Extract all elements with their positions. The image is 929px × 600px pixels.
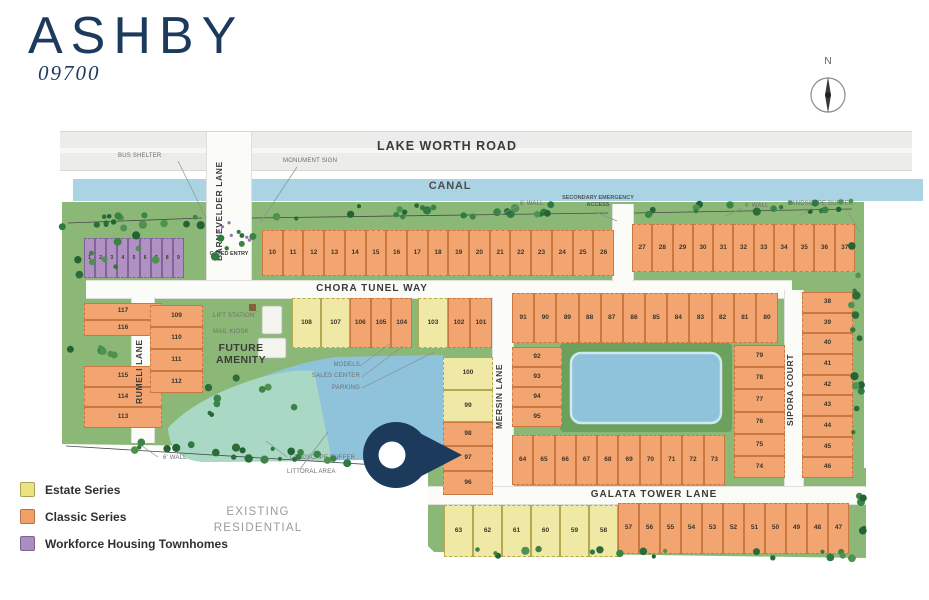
legend-item-workforce-townhomes: Workforce Housing Townhomes (20, 535, 228, 552)
lot-49[interactable]: 49 (786, 503, 807, 554)
legend-item-estate-series: Estate Series (20, 481, 228, 498)
lot-36[interactable]: 36 (814, 224, 834, 272)
lot-82[interactable]: 82 (712, 293, 734, 343)
lot-number: 57 (625, 525, 632, 532)
lot-number: 16 (393, 250, 400, 257)
lot-102[interactable]: 102 (448, 298, 470, 348)
lot-number: 108 (301, 320, 312, 327)
lot-79[interactable]: 79 (734, 345, 785, 367)
lot-65[interactable]: 65 (533, 435, 554, 485)
lot-35[interactable]: 35 (794, 224, 814, 272)
lot-number: 107 (330, 320, 341, 327)
lot-9[interactable]: 9 (173, 238, 184, 278)
lot-number: 27 (639, 245, 646, 252)
classic-series-swatch (20, 509, 35, 524)
lot-number: 86 (630, 315, 637, 322)
lot-number: 82 (719, 315, 726, 322)
lot-group-center-south: 64656667686970717273 (512, 435, 725, 485)
lot-number: 115 (118, 373, 129, 380)
lot-number: 71 (668, 457, 675, 464)
lot-number: 43 (824, 402, 831, 409)
lot-105[interactable]: 105 (371, 298, 392, 348)
lot-group-mersin-west-estate: 10099 (443, 357, 493, 422)
lot-number: 47 (835, 525, 842, 532)
lot-5[interactable]: 5 (128, 238, 139, 278)
legend-label: Workforce Housing Townhomes (45, 537, 228, 551)
lot-number: 113 (118, 414, 129, 421)
lot-52[interactable]: 52 (723, 503, 744, 554)
lot-107[interactable]: 107 (321, 298, 350, 348)
lot-number: 3 (110, 256, 113, 261)
lot-number: 104 (396, 320, 407, 327)
lot-62[interactable]: 62 (473, 505, 502, 557)
compass: N (800, 56, 856, 130)
lot-number: 61 (513, 528, 520, 535)
lot-number: 79 (756, 353, 763, 360)
lot-number: 48 (814, 525, 821, 532)
road-emergency-access (612, 204, 634, 282)
label-monument-sign: MONUMENT SIGN (283, 158, 337, 164)
lot-group-chora-south-estate: 108107 (292, 298, 350, 348)
lot-33[interactable]: 33 (754, 224, 774, 272)
lot-92[interactable]: 92 (512, 347, 562, 367)
lot-number: 10 (269, 250, 276, 257)
lot-72[interactable]: 72 (682, 435, 703, 485)
road-barnevelder-lane (206, 132, 252, 282)
lot-103[interactable]: 103 (418, 298, 448, 348)
lot-number: 39 (824, 320, 831, 327)
lot-number: 90 (542, 315, 549, 322)
lot-number: 22 (517, 250, 524, 257)
lot-number: 55 (667, 525, 674, 532)
lot-12[interactable]: 12 (303, 230, 324, 276)
canal-band (73, 179, 923, 201)
lot-63[interactable]: 63 (444, 505, 473, 557)
label-parking: PARKING (316, 385, 360, 391)
lot-number: 38 (824, 299, 831, 306)
street-label-chora-tunel-way: CHORA TUNEL WAY (292, 283, 452, 294)
label-models: MODELS (320, 362, 360, 368)
lot-group-rumeli-east: 109110111112 (150, 305, 203, 393)
lot-69[interactable]: 69 (618, 435, 639, 485)
lot-22[interactable]: 22 (510, 230, 531, 276)
lot-number: 66 (562, 457, 569, 464)
lot-73[interactable]: 73 (704, 435, 725, 485)
lot-number: 31 (720, 245, 727, 252)
compass-north-label: N (800, 56, 856, 67)
lot-number: 72 (689, 457, 696, 464)
lot-number: 11 (290, 250, 297, 257)
lot-16[interactable]: 16 (386, 230, 407, 276)
lot-57[interactable]: 57 (618, 503, 639, 554)
lot-38[interactable]: 38 (802, 292, 853, 313)
lot-21[interactable]: 21 (490, 230, 511, 276)
lot-104[interactable]: 104 (391, 298, 412, 348)
lot-74[interactable]: 74 (734, 456, 785, 478)
lot-19[interactable]: 19 (448, 230, 469, 276)
lot-number: 80 (763, 315, 770, 322)
lot-44[interactable]: 44 (802, 416, 853, 437)
lot-group-chora-south-classic: 106105104 (350, 298, 412, 348)
lot-3[interactable]: 3 (106, 238, 117, 278)
lot-group-top-row-west: 1011121314151617181920212223242526 (262, 230, 614, 276)
lot-41[interactable]: 41 (802, 354, 853, 375)
lot-number: 50 (772, 525, 779, 532)
lot-number: 99 (464, 403, 471, 410)
lot-17[interactable]: 17 (407, 230, 428, 276)
label-lift-station: LIFT STATION (213, 313, 254, 319)
lot-78[interactable]: 78 (734, 367, 785, 389)
lot-110[interactable]: 110 (150, 327, 203, 349)
lot-number: 101 (476, 320, 487, 327)
lot-4[interactable]: 4 (117, 238, 128, 278)
street-label-sipora-court: SIPORA COURT (785, 330, 795, 450)
lot-number: 7 (155, 256, 158, 261)
lot-15[interactable]: 15 (366, 230, 387, 276)
legend-item-classic-series: Classic Series (20, 508, 228, 525)
lot-number: 109 (171, 313, 182, 320)
label-wall-top-left: 6' WALL (520, 201, 544, 207)
lot-number: 97 (464, 455, 471, 462)
lot-number: 110 (171, 335, 182, 342)
lot-56[interactable]: 56 (639, 503, 660, 554)
lot-number: 98 (464, 431, 471, 438)
lot-number: 56 (646, 525, 653, 532)
lot-number: 88 (586, 315, 593, 322)
lot-number: 85 (653, 315, 660, 322)
lot-29[interactable]: 29 (673, 224, 693, 272)
lot-number: 14 (352, 250, 359, 257)
lot-80[interactable]: 80 (756, 293, 778, 343)
lot-18[interactable]: 18 (428, 230, 449, 276)
lot-14[interactable]: 14 (345, 230, 366, 276)
lot-34[interactable]: 34 (774, 224, 794, 272)
lot-number: 58 (600, 528, 607, 535)
lot-32[interactable]: 32 (733, 224, 753, 272)
lot-number: 34 (780, 245, 787, 252)
lot-number: 83 (697, 315, 704, 322)
lot-84[interactable]: 84 (667, 293, 689, 343)
lot-81[interactable]: 81 (734, 293, 756, 343)
lot-number: 114 (118, 394, 129, 401)
lot-group-galata-south-classic: 5756555453525150494847 (618, 503, 849, 554)
lot-group-center-west: 92939495 (512, 347, 562, 427)
lot-99[interactable]: 99 (443, 390, 493, 423)
lot-94[interactable]: 94 (512, 387, 562, 407)
lot-89[interactable]: 89 (556, 293, 578, 343)
lot-number: 102 (454, 320, 465, 327)
lot-95[interactable]: 95 (512, 407, 562, 427)
lot-26[interactable]: 26 (593, 230, 614, 276)
lot-45[interactable]: 45 (802, 437, 853, 458)
label-littoral-area: LITTORAL AREA (287, 469, 336, 475)
lot-6[interactable]: 6 (140, 238, 151, 278)
lot-group-center-east: 797877767574 (734, 345, 785, 478)
lot-11[interactable]: 11 (283, 230, 304, 276)
lot-68[interactable]: 68 (597, 435, 618, 485)
lot-number: 30 (699, 245, 706, 252)
lot-number: 100 (463, 370, 474, 377)
lot-64[interactable]: 64 (512, 435, 533, 485)
lot-number: 111 (171, 357, 181, 364)
lot-number: 32 (740, 245, 747, 252)
lot-number: 51 (751, 525, 758, 532)
label-future-amenity: FUTURE AMENITY (203, 342, 279, 366)
lot-number: 18 (434, 250, 441, 257)
lot-number: 68 (604, 457, 611, 464)
label-bus-shelter: BUS SHELTER (118, 153, 161, 159)
lot-31[interactable]: 31 (713, 224, 733, 272)
street-label-mersin-lane: MERSIN LANE (494, 336, 504, 456)
lot-43[interactable]: 43 (802, 395, 853, 416)
lot-number: 46 (824, 464, 831, 471)
lot-113[interactable]: 113 (84, 407, 162, 428)
lot-93[interactable]: 93 (512, 367, 562, 387)
label-gated-entry: GATED ENTRY (206, 251, 252, 258)
workforce-townhomes-swatch (20, 536, 35, 551)
lot-number: 74 (756, 464, 763, 471)
lot-37[interactable]: 37 (835, 224, 855, 272)
lot-98[interactable]: 98 (443, 422, 493, 446)
lot-number: 45 (824, 444, 831, 451)
lot-number: 29 (679, 245, 686, 252)
lot-group-chora-south-estate-2: 103 (418, 298, 448, 348)
lot-number: 4 (121, 256, 124, 261)
lot-60[interactable]: 60 (531, 505, 560, 557)
site-plan-screen: 1234567891011121314151617181920212223242… (0, 0, 929, 600)
lot-number: 28 (659, 245, 666, 252)
lot-53[interactable]: 53 (702, 503, 723, 554)
lot-47[interactable]: 47 (828, 503, 849, 554)
label-sales-center: SALES CENTER (300, 373, 360, 379)
lot-90[interactable]: 90 (534, 293, 556, 343)
street-label-galata-tower-lane: GALATA TOWER LANE (564, 489, 744, 500)
lot-number: 40 (824, 340, 831, 347)
label-secondary-emergency-access: SECONDARY EMERGENCY ACCESS (556, 195, 640, 208)
lot-group-center-north: 919089888786858483828180 (512, 293, 778, 343)
lot-24[interactable]: 24 (552, 230, 573, 276)
lot-66[interactable]: 66 (555, 435, 576, 485)
legend: Estate Series Classic Series Workforce H… (20, 481, 228, 562)
lot-111[interactable]: 111 (150, 349, 203, 371)
lot-number: 78 (756, 375, 763, 382)
lot-27[interactable]: 27 (632, 224, 652, 272)
lot-42[interactable]: 42 (802, 375, 853, 396)
lot-number: 26 (600, 250, 607, 257)
lot-number: 64 (519, 457, 526, 464)
lot-number: 63 (455, 528, 462, 535)
lot-number: 60 (542, 528, 549, 535)
lot-number: 9 (177, 256, 180, 261)
lot-number: 8 (166, 256, 169, 261)
lot-number: 54 (688, 525, 695, 532)
lot-50[interactable]: 50 (765, 503, 786, 554)
lot-number: 15 (372, 250, 379, 257)
lot-96[interactable]: 96 (443, 471, 493, 495)
lot-30[interactable]: 30 (693, 224, 713, 272)
lot-number: 62 (484, 528, 491, 535)
lot-number: 42 (824, 382, 831, 389)
lot-85[interactable]: 85 (645, 293, 667, 343)
lot-number: 17 (414, 250, 421, 257)
lot-46[interactable]: 46 (802, 457, 853, 478)
lot-number: 24 (559, 250, 566, 257)
lot-112[interactable]: 112 (150, 371, 203, 393)
label-wall-bottom: 6' WALL (163, 455, 187, 461)
lot-number: 94 (533, 394, 540, 401)
lot-58[interactable]: 58 (589, 505, 618, 557)
lot-77[interactable]: 77 (734, 389, 785, 411)
lot-number: 49 (793, 525, 800, 532)
lot-70[interactable]: 70 (640, 435, 661, 485)
lot-2[interactable]: 2 (95, 238, 106, 278)
lot-20[interactable]: 20 (469, 230, 490, 276)
lot-number: 103 (428, 320, 439, 327)
lot-8[interactable]: 8 (162, 238, 173, 278)
lot-number: 70 (647, 457, 654, 464)
lot-number: 25 (579, 250, 586, 257)
lot-28[interactable]: 28 (652, 224, 672, 272)
lot-number: 37 (841, 245, 848, 252)
lot-number: 76 (756, 419, 763, 426)
title-block: ASHBY 09700 (28, 8, 244, 86)
lot-group-townhomes: 123456789 (84, 238, 184, 278)
lot-1[interactable]: 1 (84, 238, 95, 278)
lot-number: 23 (538, 250, 545, 257)
lot-54[interactable]: 54 (681, 503, 702, 554)
lot-88[interactable]: 88 (579, 293, 601, 343)
lot-61[interactable]: 61 (502, 505, 531, 557)
lot-number: 112 (171, 379, 182, 386)
lot-group-chora-south-classic-2: 102101 (448, 298, 492, 348)
lot-101[interactable]: 101 (470, 298, 492, 348)
lot-number: 13 (331, 250, 338, 257)
lot-number: 75 (756, 442, 763, 449)
lot-number: 93 (533, 374, 540, 381)
lot-number: 53 (709, 525, 716, 532)
lot-group-top-row-east: 2728293031323334353637 (632, 224, 855, 272)
lot-number: 105 (376, 320, 387, 327)
lot-number: 91 (519, 315, 526, 322)
lot-87[interactable]: 87 (601, 293, 623, 343)
street-label-canal: CANAL (410, 180, 490, 192)
lot-number: 12 (310, 250, 317, 257)
lot-100[interactable]: 100 (443, 357, 493, 390)
legend-label: Classic Series (45, 510, 126, 524)
lot-number: 35 (801, 245, 808, 252)
lot-number: 67 (583, 457, 590, 464)
lot-86[interactable]: 86 (623, 293, 645, 343)
lot-number: 20 (476, 250, 483, 257)
estate-series-swatch (20, 482, 35, 497)
lot-67[interactable]: 67 (576, 435, 597, 485)
lot-number: 36 (821, 245, 828, 252)
lot-75[interactable]: 75 (734, 434, 785, 456)
lot-group-galata-south-estate: 636261605958 (444, 505, 618, 557)
lot-10[interactable]: 10 (262, 230, 283, 276)
label-mail-kiosk: MAIL KIOSK (213, 329, 249, 335)
lot-number: 1 (88, 256, 91, 261)
lot-number: 21 (496, 250, 503, 257)
lot-48[interactable]: 48 (807, 503, 828, 554)
lot-59[interactable]: 59 (560, 505, 589, 557)
lot-number: 73 (711, 457, 718, 464)
lot-number: 106 (355, 320, 366, 327)
lot-number: 52 (730, 525, 737, 532)
lot-51[interactable]: 51 (744, 503, 765, 554)
lot-108[interactable]: 108 (292, 298, 321, 348)
lot-number: 95 (533, 414, 540, 421)
label-landscape-buffer-bottom: LANDSCAPE BUFFER (290, 455, 355, 461)
lot-83[interactable]: 83 (689, 293, 711, 343)
lot-number: 59 (571, 528, 578, 535)
lot-55[interactable]: 55 (660, 503, 681, 554)
lot-number: 92 (533, 354, 540, 361)
street-label-lake-worth-road: LAKE WORTH ROAD (347, 139, 547, 153)
lot-39[interactable]: 39 (802, 313, 853, 334)
lot-7[interactable]: 7 (151, 238, 162, 278)
label-landscape-buffer-top: LANDSCAPE BUFFER (788, 201, 853, 207)
lot-106[interactable]: 106 (350, 298, 371, 348)
lot-number: 84 (675, 315, 682, 322)
lot-number: 2 (99, 256, 102, 261)
lot-group-east-column: 383940414243444546 (802, 292, 853, 478)
compass-icon (800, 67, 856, 123)
lot-76[interactable]: 76 (734, 412, 785, 434)
lot-number: 117 (118, 308, 129, 315)
lot-40[interactable]: 40 (802, 333, 853, 354)
lot-23[interactable]: 23 (531, 230, 552, 276)
lot-number: 77 (756, 397, 763, 404)
lot-109[interactable]: 109 (150, 305, 203, 327)
street-label-rumeli-lane: RUMELI LANE (134, 312, 144, 432)
lot-number: 116 (118, 325, 129, 332)
lot-number: 33 (760, 245, 767, 252)
lot-number: 96 (464, 480, 471, 487)
lot-13[interactable]: 13 (324, 230, 345, 276)
lot-number: 5 (133, 256, 136, 261)
lot-number: 65 (540, 457, 547, 464)
label-wall-top-right: 6' WALL (745, 203, 769, 209)
community-title: ASHBY (28, 8, 244, 65)
lot-91[interactable]: 91 (512, 293, 534, 343)
lot-number: 89 (564, 315, 571, 322)
lot-number: 19 (455, 250, 462, 257)
lot-25[interactable]: 25 (573, 230, 594, 276)
lot-number: 6 (144, 256, 147, 261)
legend-label: Estate Series (45, 483, 120, 497)
lot-71[interactable]: 71 (661, 435, 682, 485)
lot-number: 69 (626, 457, 633, 464)
lot-number: 44 (824, 423, 831, 430)
lot-number: 87 (608, 315, 615, 322)
lot-number: 81 (741, 315, 748, 322)
lot-number: 41 (824, 361, 831, 368)
